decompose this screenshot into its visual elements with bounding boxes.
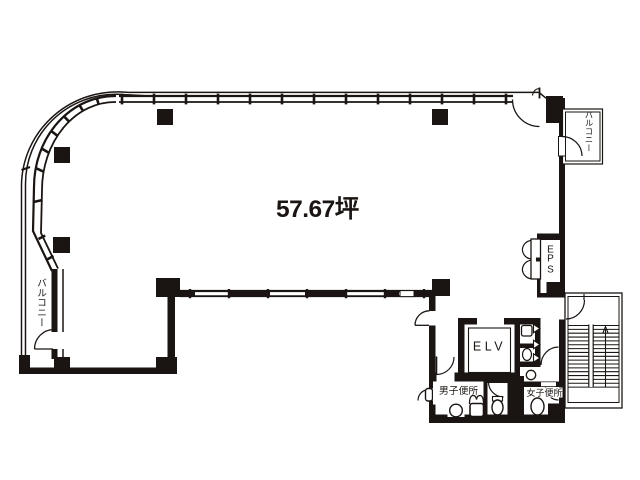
svg-text:57.67坪: 57.67坪: [276, 195, 359, 223]
svg-text:女子便所: 女子便所: [527, 387, 563, 398]
svg-text:ELV: ELV: [473, 340, 506, 354]
svg-text:バルコニー: バルコニー: [35, 278, 47, 327]
svg-text:P: P: [547, 254, 554, 265]
svg-text:S: S: [547, 265, 554, 276]
svg-text:バルコニー: バルコニー: [584, 111, 594, 153]
